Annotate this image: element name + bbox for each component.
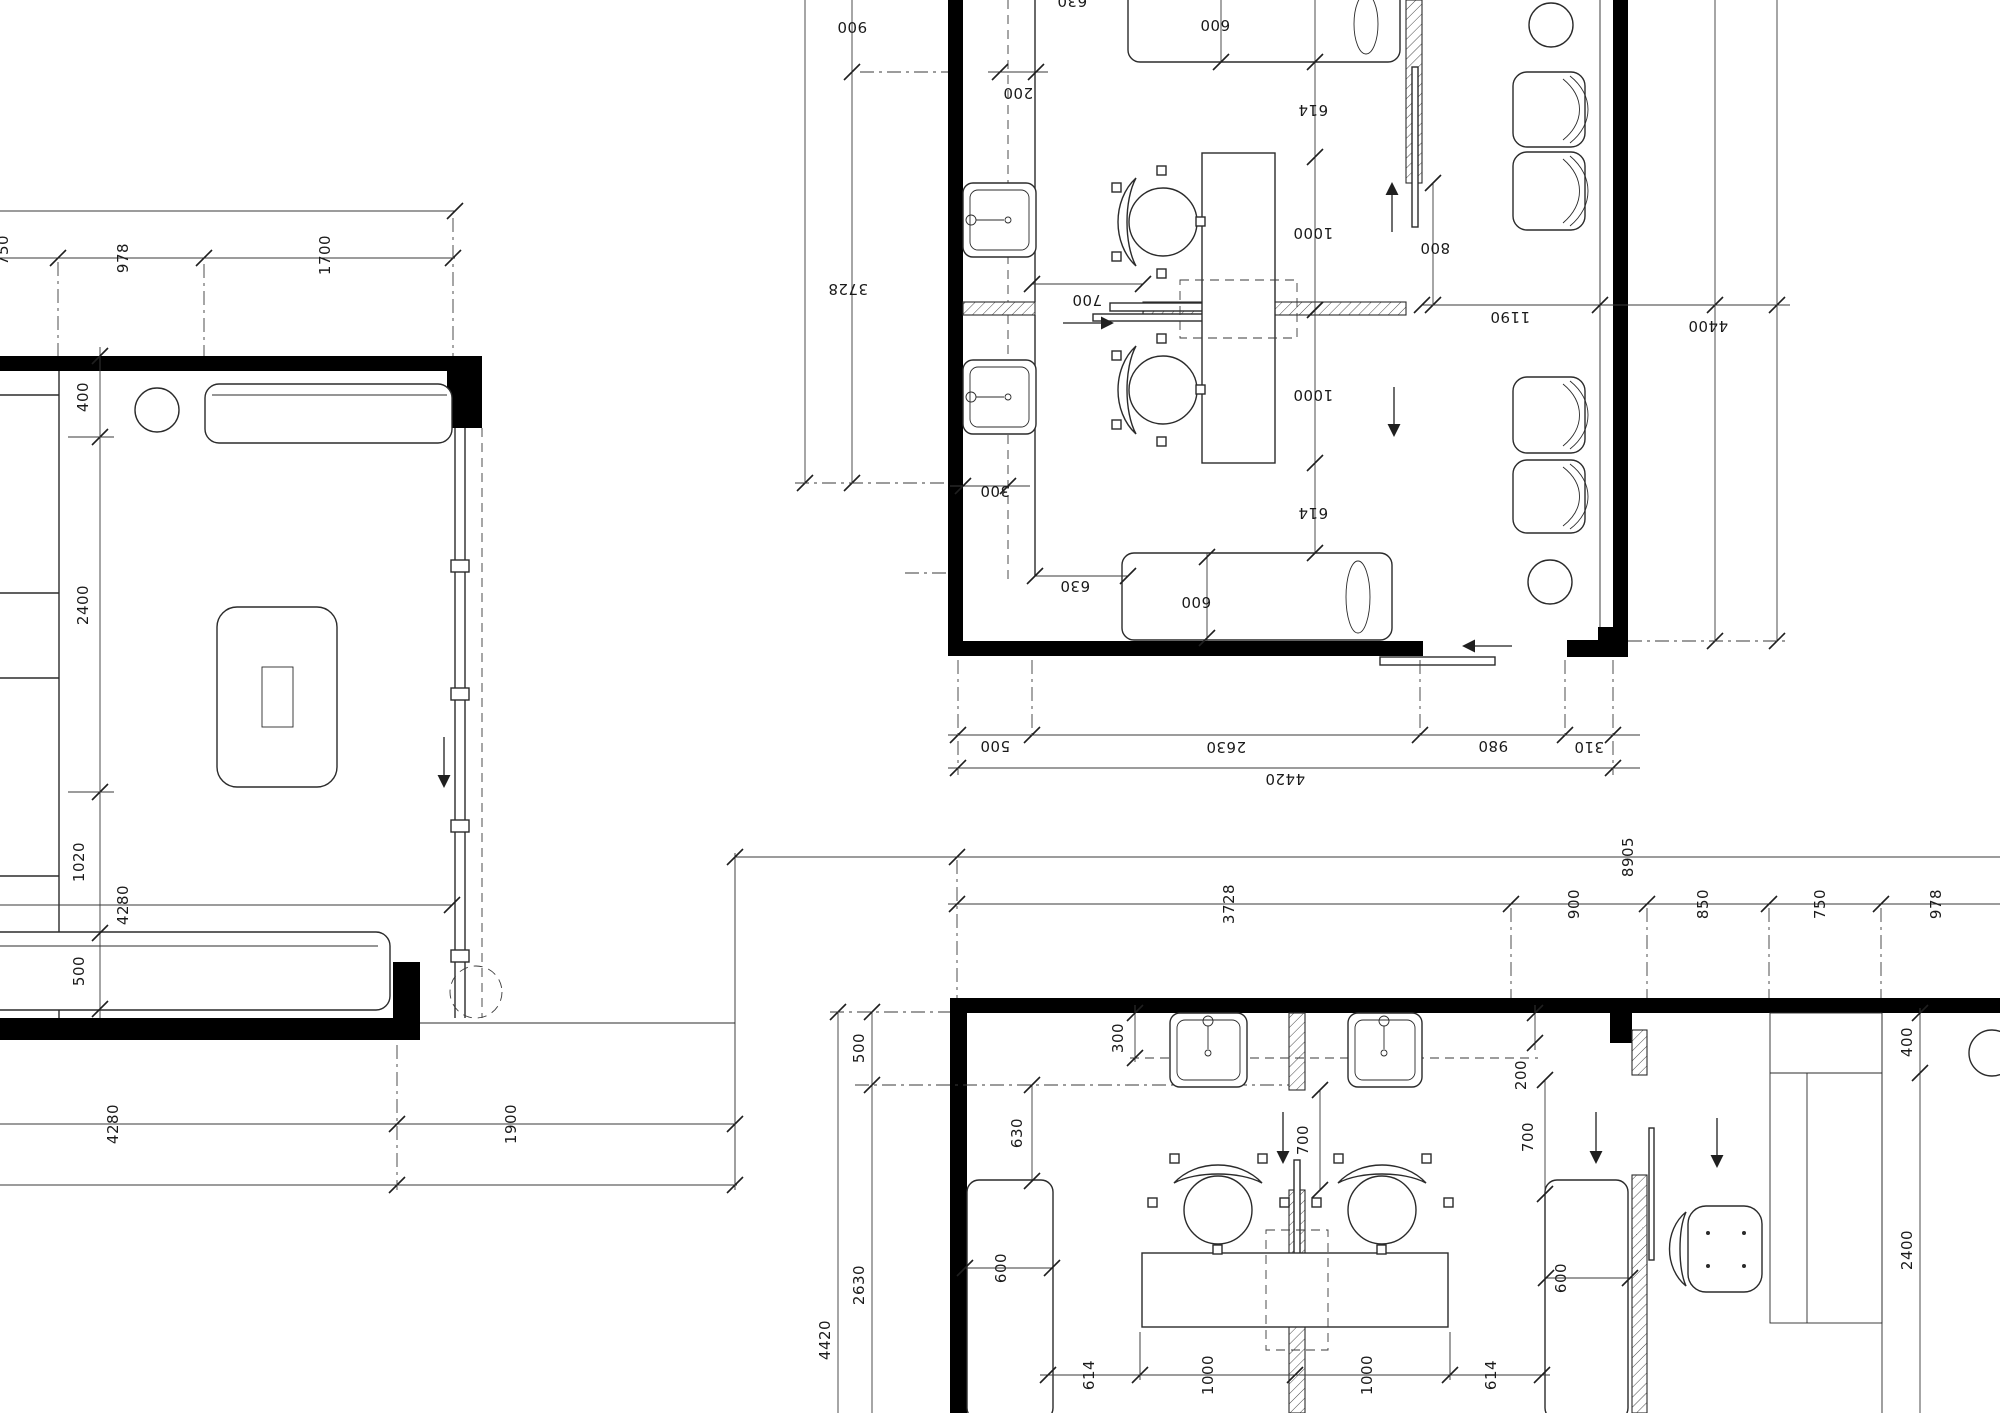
stool xyxy=(135,388,179,432)
dim-label: 1000 xyxy=(1293,386,1333,404)
shared-desk xyxy=(1202,153,1275,463)
table xyxy=(217,607,337,787)
bench-top xyxy=(205,384,452,443)
dim-label: 1190 xyxy=(1490,308,1530,326)
dim-label: 1020 xyxy=(70,842,88,882)
dimensions-suite-rotated: 900 3728 630 200 300 600 600 630 614 100… xyxy=(795,0,1790,788)
dim-label: 4280 xyxy=(104,1104,122,1144)
wall xyxy=(950,998,2000,1413)
sink xyxy=(1170,1013,1247,1087)
dimensions-left-room: 750 978 1700 400 2400 1020 500 4280 4280… xyxy=(0,203,743,1193)
dim-label: 500 xyxy=(70,956,88,986)
dim-label: 750 xyxy=(1811,889,1829,919)
dim-label: 310 xyxy=(1574,738,1604,756)
plan-left-room: 750 978 1700 400 2400 1020 500 4280 4280… xyxy=(0,203,743,1193)
dim-label: 1700 xyxy=(316,235,334,275)
lounge-chair xyxy=(1513,460,1588,533)
dim-label: 200 xyxy=(1512,1060,1530,1090)
dim-label: 3728 xyxy=(828,280,868,298)
dim-label: 1000 xyxy=(1358,1355,1376,1395)
dim-label: 900 xyxy=(1565,889,1583,919)
dim-label: 2630 xyxy=(1206,738,1246,756)
daybed xyxy=(1122,553,1392,640)
dim-label: 600 xyxy=(992,1253,1010,1283)
office-chair xyxy=(1312,1154,1453,1254)
dim-label: 8905 xyxy=(1619,837,1637,877)
desk-chair xyxy=(1670,1206,1763,1292)
window-wall xyxy=(451,428,482,1018)
dim-label: 1000 xyxy=(1199,1355,1217,1395)
dim-label: 700 xyxy=(1519,1122,1537,1152)
plan-suite-bottom: 8905 3728 900 850 750 978 500 2630 4420 … xyxy=(727,837,2000,1413)
dim-label: 2400 xyxy=(74,585,92,625)
dim-label: 980 xyxy=(1478,737,1508,755)
plant xyxy=(1528,560,1572,604)
sofa-bottom xyxy=(0,932,390,1010)
dim-label: 4400 xyxy=(1688,317,1728,335)
dim-label: 978 xyxy=(114,243,132,273)
sink xyxy=(1348,1013,1422,1087)
floorplan-canvas: 750 978 1700 400 2400 1020 500 4280 4280… xyxy=(0,0,2000,1413)
dim-label: 630 xyxy=(1060,577,1090,595)
shared-desk xyxy=(1142,1253,1448,1327)
dim-label: 300 xyxy=(1109,1023,1127,1053)
dim-label: 400 xyxy=(1898,1027,1916,1057)
dim-label: 500 xyxy=(980,737,1010,755)
dim-label: 4420 xyxy=(1265,770,1305,788)
floorplan-sheet: 750 978 1700 400 2400 1020 500 4280 4280… xyxy=(0,0,2000,1413)
dim-label: 200 xyxy=(1003,84,1033,102)
dim-label: 600 xyxy=(1552,1263,1570,1293)
daybed xyxy=(1545,1180,1628,1413)
dim-label: 850 xyxy=(1694,889,1712,919)
dim-label: 800 xyxy=(1420,239,1450,257)
lounge-chair xyxy=(1513,72,1588,147)
daybed xyxy=(967,1180,1053,1413)
dim-label: 4280 xyxy=(114,885,132,925)
reception-desk xyxy=(1770,1013,1882,1413)
office-chair xyxy=(1112,166,1205,278)
dim-label: 500 xyxy=(850,1033,868,1063)
dim-label: 2630 xyxy=(850,1265,868,1305)
sink xyxy=(963,360,1036,434)
dim-label: 600 xyxy=(1181,593,1211,611)
dim-label: 614 xyxy=(1080,1360,1098,1390)
cabinet-run xyxy=(0,371,59,1018)
dim-label: 630 xyxy=(1008,1118,1026,1148)
dim-label: 3728 xyxy=(1220,884,1238,924)
sink xyxy=(963,183,1036,257)
office-chair xyxy=(1148,1154,1289,1254)
column-dashed xyxy=(450,966,502,1018)
lounge-chair xyxy=(1513,377,1588,453)
dim-label: 600 xyxy=(1200,16,1230,34)
plant xyxy=(1969,1030,2000,1076)
plant xyxy=(1529,3,1573,47)
dim-label: 614 xyxy=(1298,101,1328,119)
dim-label: 700 xyxy=(1072,291,1102,309)
dim-label: 750 xyxy=(0,235,12,265)
dim-label: 614 xyxy=(1298,504,1328,522)
plan-suite-rotated: 900 3728 630 200 300 600 600 630 614 100… xyxy=(795,0,1790,788)
dim-label: 1000 xyxy=(1293,224,1333,242)
dim-label: 700 xyxy=(1294,1125,1312,1155)
dim-label: 300 xyxy=(980,482,1010,500)
office-chair xyxy=(1112,334,1205,446)
dim-label: 1900 xyxy=(502,1104,520,1144)
daybed xyxy=(1128,0,1400,62)
dim-label: 630 xyxy=(1057,0,1087,10)
dim-label: 4420 xyxy=(816,1320,834,1360)
dim-label: 900 xyxy=(837,18,867,36)
lounge-chair xyxy=(1513,152,1588,230)
dim-label: 614 xyxy=(1482,1360,1500,1390)
dim-label: 2400 xyxy=(1898,1230,1916,1270)
dim-label: 978 xyxy=(1927,889,1945,919)
dim-label: 400 xyxy=(74,382,92,412)
